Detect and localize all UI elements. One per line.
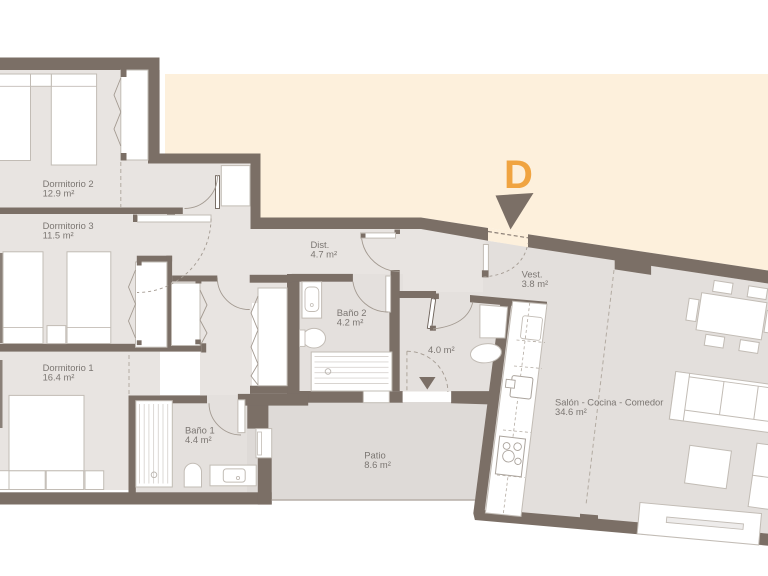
svg-text:4.2 m²: 4.2 m² (337, 317, 364, 328)
svg-text:4.4 m²: 4.4 m² (185, 434, 212, 445)
svg-text:3.8 m²: 3.8 m² (522, 278, 549, 289)
svg-text:12.9 m²: 12.9 m² (43, 188, 75, 199)
svg-text:16.4 m²: 16.4 m² (43, 371, 75, 382)
svg-text:4.0 m²: 4.0 m² (428, 344, 455, 355)
svg-text:4.7 m²: 4.7 m² (311, 249, 338, 260)
svg-text:34.6 m²: 34.6 m² (555, 406, 587, 417)
svg-text:11.5 m²: 11.5 m² (43, 229, 74, 240)
svg-text:8.6 m²: 8.6 m² (364, 459, 391, 470)
svg-text:D: D (504, 153, 533, 197)
